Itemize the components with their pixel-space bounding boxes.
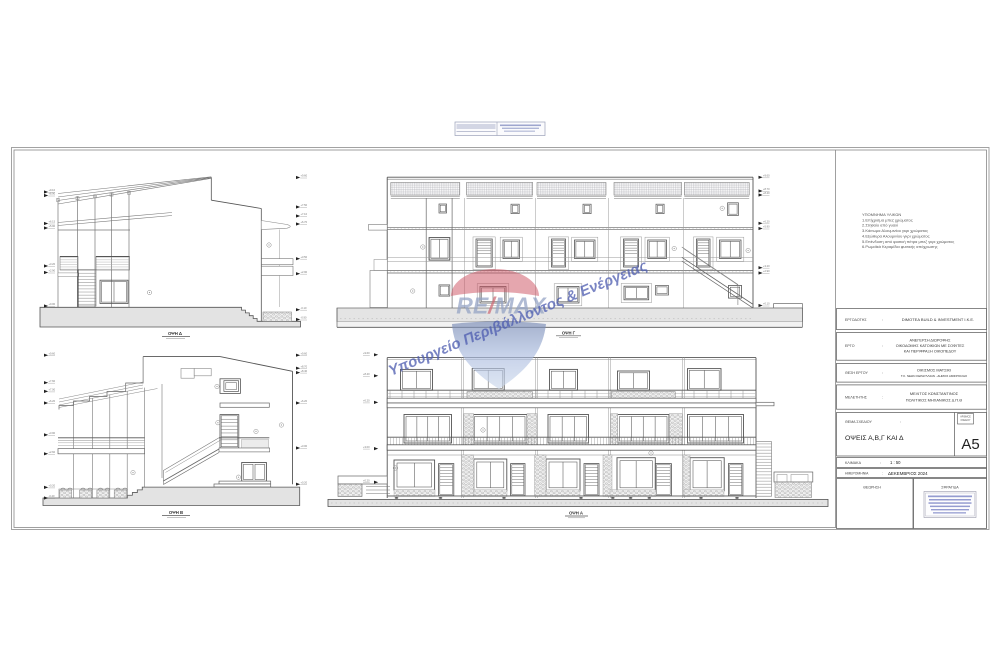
svg-text:+3.00: +3.00 <box>363 445 370 449</box>
svg-text:+8.70: +8.70 <box>763 187 770 191</box>
svg-text:ΟΨΗ Α: ΟΨΗ Α <box>569 511 583 516</box>
svg-text:+8.40: +8.40 <box>363 372 370 376</box>
svg-text:ΣΧΕΔΙΟΥ: ΣΧΕΔΙΟΥ <box>961 419 971 422</box>
svg-text:+8.40: +8.40 <box>763 191 770 195</box>
svg-text:+6.70: +6.70 <box>301 220 308 224</box>
svg-text:ΟΙΚΟΔΟΜΗΣ ΚΑΤΟΙΚΙΩΝ ΜΕ ΣΟΦΙΤΕΣ: ΟΙΚΟΔΟΜΗΣ ΚΑΤΟΙΚΙΩΝ ΜΕ ΣΟΦΙΤΕΣ <box>896 344 965 348</box>
svg-text:ΜΕΛΕΤΗΤΗΣ: ΜΕΛΕΤΗΤΗΣ <box>845 396 868 400</box>
svg-text:6.Ρωμαϊκά Κεραμίδια φυσικής απ: 6.Ρωμαϊκά Κεραμίδια φυσικής απόχρωσης <box>862 244 938 249</box>
svg-text:+7.10: +7.10 <box>301 212 308 216</box>
svg-text:+2.60: +2.60 <box>49 450 56 454</box>
svg-text::: : <box>882 472 883 476</box>
svg-text:+3.20: +3.20 <box>763 264 770 268</box>
svg-text:ΘΕΣΗ ΕΡΓΟΥ: ΘΕΣΗ ΕΡΓΟΥ <box>845 371 868 375</box>
svg-text::: : <box>882 371 883 375</box>
svg-text:+0.00: +0.00 <box>49 302 56 306</box>
svg-text:+7.00: +7.00 <box>49 388 56 392</box>
svg-text:3.Κάσωμα Αλουμινίου γκρι χρώμα: 3.Κάσωμα Αλουμινίου γκρι χρώματος <box>862 228 928 233</box>
svg-text:ΜΕΛΙΤΟΣ ΚΩΝΣΤΑΝΤΙΝΟΣ: ΜΕΛΙΤΟΣ ΚΩΝΣΤΑΝΤΙΝΟΣ <box>910 391 959 396</box>
svg-text:ΑΡΙΘΜΟΣ: ΑΡΙΘΜΟΣ <box>960 416 971 419</box>
svg-text:ΔΕΚΕΜΒΡΙΟΣ 2024: ΔΕΚΕΜΒΡΙΟΣ 2024 <box>888 471 928 476</box>
svg-text:+5.90: +5.90 <box>763 225 770 229</box>
svg-text:+9.60: +9.60 <box>763 174 770 178</box>
svg-text:ΕΡΓΟΔΟΤΗΣ: ΕΡΓΟΔΟΤΗΣ <box>845 318 867 322</box>
svg-text:+6.20: +6.20 <box>49 399 56 403</box>
svg-text:+3.90: +3.90 <box>49 431 56 435</box>
svg-text:+5.90: +5.90 <box>49 224 56 228</box>
svg-text:+9.60: +9.60 <box>301 174 308 178</box>
svg-text:+7.50: +7.50 <box>301 203 308 207</box>
svg-text:1.Επίχρισμα μπεζ χρώματος: 1.Επίχρισμα μπεζ χρώματος <box>862 217 913 222</box>
svg-text:ΑΝΕΓΕΡΣΗ ΔΙΩΡΟΦΗΣ: ΑΝΕΓΕΡΣΗ ΔΙΩΡΟΦΗΣ <box>910 339 952 343</box>
svg-text:ΥΠΟΜΝΗΜΑ ΥΛΙΚΩΝ: ΥΠΟΜΝΗΜΑ ΥΛΙΚΩΝ <box>862 212 901 217</box>
svg-text:ΣΦΡΑΓΙΔΑ: ΣΦΡΑΓΙΔΑ <box>941 486 959 490</box>
svg-text:+6.20: +6.20 <box>763 220 770 224</box>
svg-text:+0.20: +0.20 <box>49 484 56 488</box>
svg-text:A5: A5 <box>961 436 979 453</box>
svg-text:+3.20: +3.20 <box>49 262 56 266</box>
svg-text:ΗΜΕΡΟΜΗΝΙΑ: ΗΜΕΡΟΜΗΝΙΑ <box>845 472 869 476</box>
svg-text:+8.70: +8.70 <box>301 364 308 368</box>
svg-text:+2.90: +2.90 <box>763 269 770 273</box>
svg-text:ΠΟΛΙΤΙΚΟΣ ΜΗΧΑΝΙΚΟΣ Δ.Π.Θ: ΠΟΛΙΤΙΚΟΣ ΜΗΧΑΝΙΚΟΣ Δ.Π.Θ <box>906 398 962 403</box>
svg-text:DIMOTEA BUILD & INVESTMENT I.K: DIMOTEA BUILD & INVESTMENT I.K.E. <box>902 317 974 322</box>
svg-text::: : <box>900 420 901 424</box>
svg-text:ΟΨΕΙΣ Α,Β,Γ ΚΑΙ Δ: ΟΨΕΙΣ Α,Β,Γ ΚΑΙ Δ <box>845 435 904 442</box>
svg-text:5.Επένδυση από φυσική πέτρα μπ: 5.Επένδυση από φυσική πέτρα μπεζ γκρι χρ… <box>862 239 954 244</box>
svg-text:+6.20: +6.20 <box>363 399 370 403</box>
svg-text:ΘΕΜΑ ΣΧΕΔΙΟΥ: ΘΕΜΑ ΣΧΕΔΙΟΥ <box>845 420 872 424</box>
svg-text:+7.60: +7.60 <box>49 379 56 383</box>
svg-text:+6.20: +6.20 <box>301 399 308 403</box>
svg-text:+0.20: +0.20 <box>301 480 308 484</box>
svg-text:+8.90: +8.90 <box>49 192 56 196</box>
svg-text:+9.60: +9.60 <box>49 351 56 355</box>
svg-text:+3.00: +3.00 <box>301 444 308 448</box>
svg-text:+9.60: +9.60 <box>363 351 370 355</box>
svg-text:ΕΡΓΟ: ΕΡΓΟ <box>845 344 855 348</box>
svg-text:Τ.Κ. ΝΕΩΝ ΚΕΡΔΥΛΛΙΩΝ - ΔΗΜΟΣ Α: Τ.Κ. ΝΕΩΝ ΚΕΡΔΥΛΛΙΩΝ - ΔΗΜΟΣ ΑΜΦΙΠΟΛΗΣ <box>901 374 967 378</box>
svg-text:+0.10: +0.10 <box>763 302 770 306</box>
svg-text:+6.15: +6.15 <box>49 220 56 224</box>
svg-text:+0.20: +0.20 <box>363 478 370 482</box>
svg-text:-0.10: -0.10 <box>301 306 307 310</box>
svg-text:ΟΨΗ Δ: ΟΨΗ Δ <box>168 331 182 336</box>
svg-text::: : <box>882 344 883 348</box>
svg-text:ΘΕΩΡΗΣΗ: ΘΕΩΡΗΣΗ <box>863 486 881 490</box>
svg-text:+2.90: +2.90 <box>301 270 308 274</box>
svg-text::: : <box>882 396 883 400</box>
svg-text:+9.10: +9.10 <box>49 188 56 192</box>
svg-text:2.Στηθαίο από γυαλί: 2.Στηθαίο από γυαλί <box>862 223 898 228</box>
svg-text:+2.90: +2.90 <box>49 269 56 273</box>
svg-text:ΟΙΚΙΣΜΟΣ ΜΑΤΣΙΚΙ: ΟΙΚΙΣΜΟΣ ΜΑΤΣΙΚΙ <box>917 369 951 373</box>
svg-text:4.Εξώθυρα Αλουμινίου γκρι χρώμ: 4.Εξώθυρα Αλουμινίου γκρι χρώματος <box>862 233 930 238</box>
svg-text:ΟΨΗ Γ: ΟΨΗ Γ <box>562 330 576 335</box>
svg-text:-0.90: -0.90 <box>301 316 307 320</box>
svg-text:ΚΛΙΜΑΚΑ: ΚΛΙΜΑΚΑ <box>845 461 862 465</box>
svg-text::: : <box>882 318 883 322</box>
svg-text:1 : 50: 1 : 50 <box>890 460 901 465</box>
svg-text:-0.40: -0.40 <box>49 494 55 498</box>
svg-text:+8.40: +8.40 <box>301 369 308 373</box>
svg-text:ΟΨΗ Β: ΟΨΗ Β <box>169 510 183 515</box>
svg-text:+3.50: +3.50 <box>301 255 308 259</box>
svg-text:+9.60: +9.60 <box>301 351 308 355</box>
svg-text:ΚΑΙ ΠΕΡΙΦΡΑΞΗ ΟΙΚΟΠΕΔΟΥ: ΚΑΙ ΠΕΡΙΦΡΑΞΗ ΟΙΚΟΠΕΔΟΥ <box>904 350 957 354</box>
svg-text::: : <box>880 461 881 465</box>
